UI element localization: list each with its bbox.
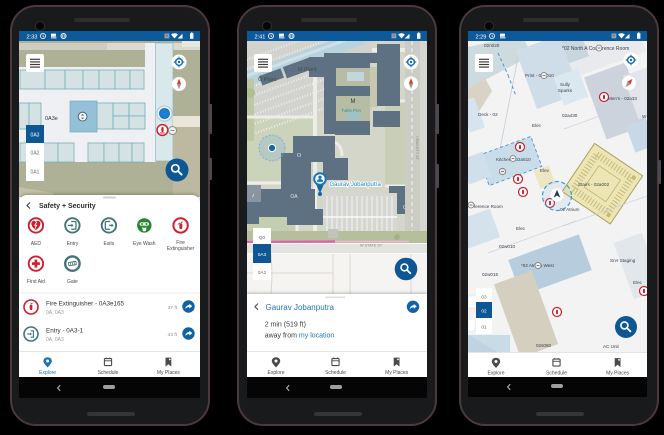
svg-text:AC Unit: AC Unit <box>603 344 620 349</box>
svg-text:Schedule: Schedule <box>546 371 567 377</box>
svg-text:0A, 0A3: 0A, 0A3 <box>46 310 64 316</box>
svg-text:0A3: 0A3 <box>258 252 267 258</box>
svg-text:M: M <box>351 99 356 105</box>
svg-text:Stairs - 02a002: Stairs - 02a002 <box>578 182 610 187</box>
svg-text:My Places: My Places <box>385 370 409 376</box>
svg-text:0A1: 0A1 <box>31 170 40 176</box>
svg-text:First Aid: First Aid <box>27 279 45 285</box>
svg-text:ference Room: ference Room <box>474 204 503 209</box>
svg-text:O: O <box>297 153 302 159</box>
svg-text:Safety + Security: Safety + Security <box>39 203 96 210</box>
svg-text:Sully: Sully <box>560 82 571 87</box>
svg-text:0A3e: 0A3e <box>45 116 58 122</box>
svg-text:Entry - 0A3-1: Entry - 0A3-1 <box>46 328 84 335</box>
svg-text:OA: OA <box>290 194 298 200</box>
svg-text:0A2: 0A2 <box>258 270 267 276</box>
svg-text:Elec: Elec <box>516 226 526 231</box>
svg-text:2:33: 2:33 <box>27 34 38 40</box>
svg-text:Extinguisher: Extinguisher <box>167 246 195 252</box>
svg-text:Tuttle Pon: Tuttle Pon <box>341 108 361 113</box>
svg-text:Entry: Entry <box>67 241 79 247</box>
svg-text:0A, 0A3: 0A, 0A3 <box>46 337 64 343</box>
svg-text:Elec: Elec <box>633 280 643 285</box>
svg-text:02: 02 <box>481 309 487 315</box>
svg-text:Explore: Explore <box>268 370 285 376</box>
svg-text:2 min (519 ft): 2 min (519 ft) <box>265 322 306 329</box>
svg-text:Explore: Explore <box>488 371 505 377</box>
svg-text:03: 03 <box>481 295 487 301</box>
svg-text:02n020: 02n020 <box>484 43 500 48</box>
svg-text:O Plant: O Plant <box>258 77 277 83</box>
svg-text:My Places: My Places <box>606 371 630 377</box>
svg-text:Q0: Q0 <box>259 235 266 241</box>
svg-text:02w010: 02w010 <box>499 244 516 249</box>
svg-text:02w015: 02w015 <box>482 272 499 277</box>
svg-text:02s080: 02s080 <box>536 343 552 348</box>
svg-text:HEWLETT ST: HEWLETT ST <box>415 136 419 161</box>
svg-text:W: W <box>642 114 647 119</box>
svg-text:2:29: 2:29 <box>476 34 487 40</box>
svg-text:Elev: Elev <box>540 168 550 173</box>
svg-text:Eye Wash: Eye Wash <box>133 241 156 247</box>
svg-text:Elec: Elec <box>532 123 542 128</box>
svg-text:43 ft: 43 ft <box>168 332 178 338</box>
svg-text:M Plant: M Plant <box>298 67 317 73</box>
svg-text:Men's - 02a33: Men's - 02a33 <box>608 96 637 101</box>
svg-text:Srvr Staging: Srvr Staging <box>610 258 636 263</box>
svg-text:Sparks: Sparks <box>558 88 573 93</box>
svg-text:Deck - 02: Deck - 02 <box>478 112 498 117</box>
svg-text:AED: AED <box>31 241 42 247</box>
svg-text:Print - 02n010: Print - 02n010 <box>525 73 554 78</box>
svg-text:Schedule: Schedule <box>325 370 346 376</box>
svg-text:Schedule: Schedule <box>98 370 119 376</box>
svg-text:0A2: 0A2 <box>31 151 40 157</box>
svg-text:01: 01 <box>481 325 487 331</box>
svg-text:0A3: 0A3 <box>31 133 40 139</box>
svg-text:Gaurav Jobanputra: Gaurav Jobanputra <box>330 182 382 188</box>
svg-text:37 ft: 37 ft <box>168 305 178 311</box>
svg-text:2:41: 2:41 <box>255 34 266 40</box>
svg-text:02a430: 02a430 <box>562 113 578 118</box>
svg-text:Gaurav Jobanputra: Gaurav Jobanputra <box>266 303 335 312</box>
svg-text:Gate: Gate <box>67 279 78 285</box>
svg-text:Explore: Explore <box>39 370 56 376</box>
svg-text:W STATE ST: W STATE ST <box>360 244 383 248</box>
svg-text:Exits: Exits <box>103 241 114 247</box>
svg-text:away from my location: away from my location <box>265 333 335 340</box>
svg-text:♪: ♪ <box>252 193 255 199</box>
svg-text:*02 North A Conference Room: *02 North A Conference Room <box>562 46 629 52</box>
svg-text:Fire Extinguisher - 0A3e165: Fire Extinguisher - 0A3e165 <box>46 301 125 308</box>
svg-text:My Places: My Places <box>157 370 181 376</box>
